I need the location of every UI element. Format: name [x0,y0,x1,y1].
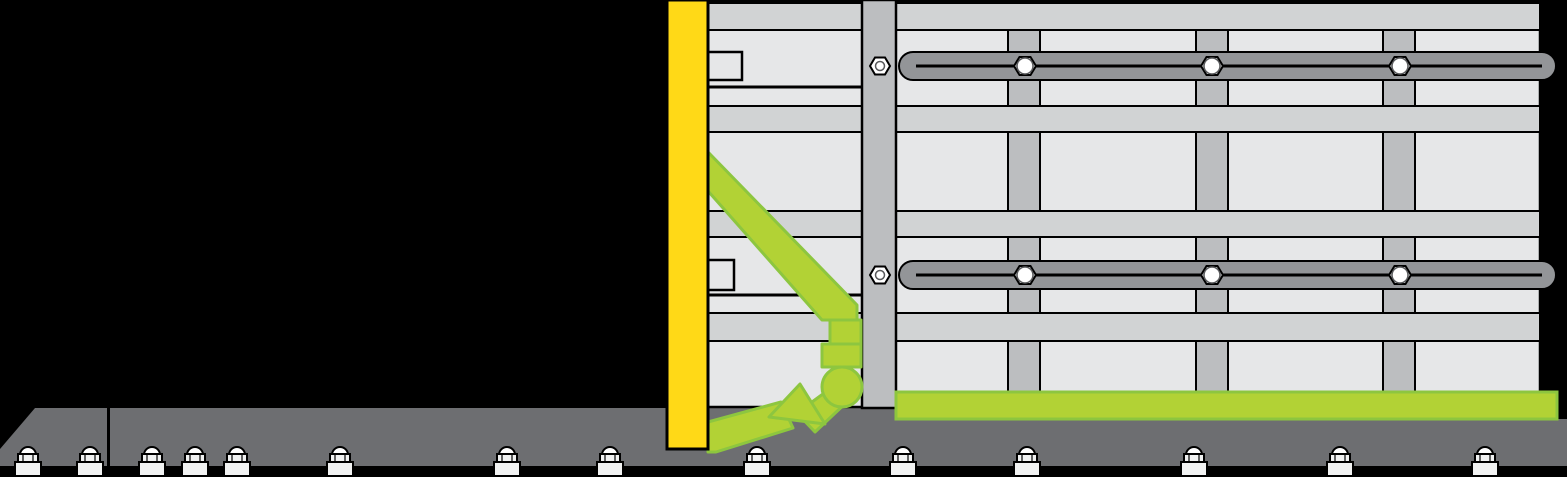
anchor-collar [18,454,38,462]
vertical-stud [1383,341,1415,394]
anchor-base [1014,462,1040,476]
anchor-collar [1184,454,1204,462]
horizontal-band [708,106,1540,132]
anchor-collar [227,454,247,462]
waler-bolt-washer [1204,267,1220,283]
tie-plate-tab [708,260,734,290]
tie-plate-tab [708,52,742,80]
anchor-collar [497,454,517,462]
anchor-base [224,462,250,476]
waler-bolt-washer [1204,58,1220,74]
anchor-collar [142,454,162,462]
anchor-base [327,462,353,476]
anchor-collar [1475,454,1495,462]
yellow-form-panel [667,0,708,449]
waler-bolt-washer [1392,58,1408,74]
ball-joint [822,367,862,407]
anchor-base [890,462,916,476]
anchor-base [77,462,103,476]
formwork-elevation-diagram [0,0,1567,477]
anchor-collar [893,454,913,462]
anchor-collar [600,454,620,462]
horizontal-band [708,211,1540,237]
anchor-base [744,462,770,476]
waler-bolt-washer [1017,58,1033,74]
anchor-collar [185,454,205,462]
anchor-base [15,462,41,476]
anchor-collar [80,454,100,462]
vertical-stud [1196,132,1228,211]
anchor-collar [1330,454,1350,462]
formwork-elevation-scene [0,0,1567,477]
anchor-collar [747,454,767,462]
anchor-base [1327,462,1353,476]
post-bolt [870,267,890,284]
brace-segment-lower [822,344,861,367]
post-bolt [870,58,890,75]
brace-segment-upper [830,320,861,344]
anchor-base [597,462,623,476]
anchor-collar [1017,454,1037,462]
anchor-base [1472,462,1498,476]
waler-bolt-washer [1017,267,1033,283]
anchor-base [494,462,520,476]
anchor-collar [330,454,350,462]
anchor-base [139,462,165,476]
vertical-stud [1383,132,1415,211]
horizontal-band [708,3,1540,30]
vertical-stud [1008,341,1040,394]
anchor-base [1181,462,1207,476]
vertical-stud [1196,341,1228,394]
base-sill [896,392,1557,419]
vertical-stud [1008,132,1040,211]
anchor-base [182,462,208,476]
waler-bolt-washer [1392,267,1408,283]
